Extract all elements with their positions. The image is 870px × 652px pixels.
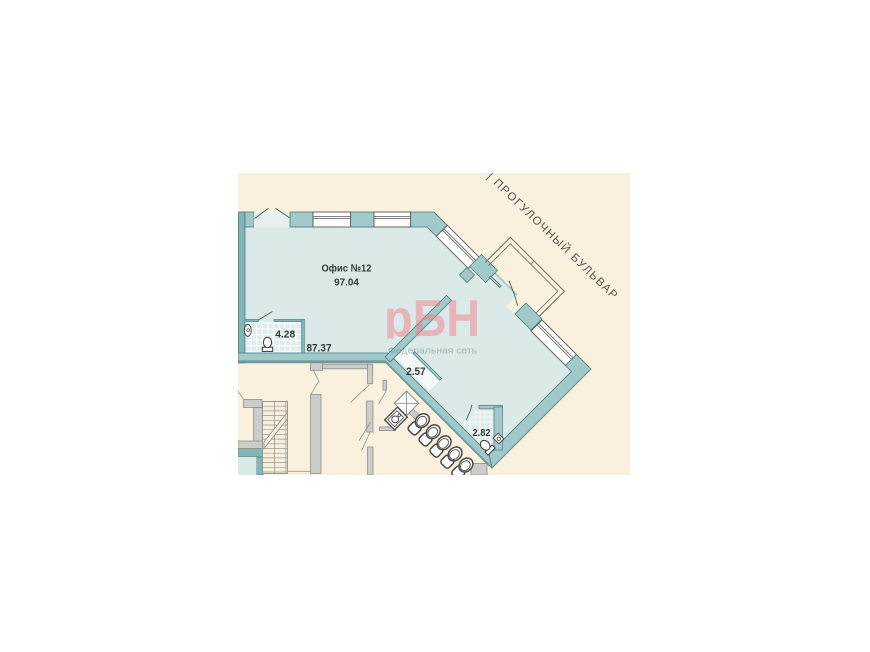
svg-text:Офис №12: Офис №12: [322, 262, 372, 274]
svg-text:87.37: 87.37: [307, 343, 332, 355]
svg-text:4.28: 4.28: [275, 329, 295, 341]
svg-text:2.82: 2.82: [473, 427, 491, 439]
svg-text:2.57: 2.57: [406, 366, 426, 378]
svg-text:Федеральная сеть: Федеральная сеть: [388, 346, 477, 357]
svg-text:97.04: 97.04: [334, 276, 359, 288]
